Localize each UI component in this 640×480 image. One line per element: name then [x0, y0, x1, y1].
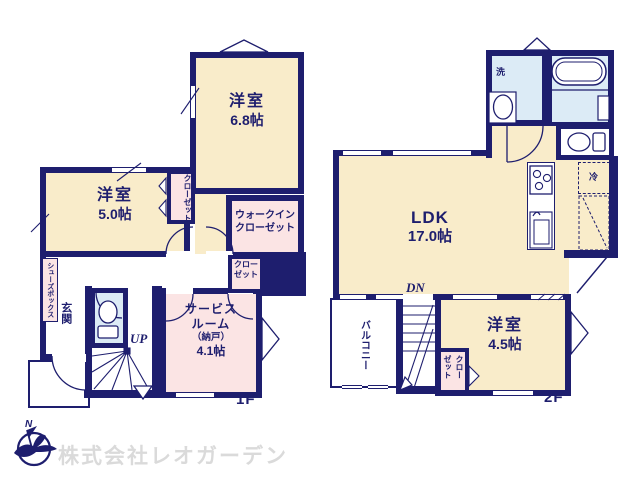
room-1f-50-label: 洋室 5.0帖 — [40, 186, 190, 224]
closet-line1: クロー — [228, 260, 264, 270]
window-2f-balcony1 — [340, 294, 366, 300]
window-2f-45-top1 — [453, 294, 497, 300]
room-2f-45-label: 洋室 4.5帖 — [440, 316, 570, 354]
wall-1f-hall-right — [152, 286, 162, 398]
service-room-label: サービス ルーム （納戸） 4.1帖 — [162, 302, 260, 359]
walkin-closet-label: ウォークイン クローゼット — [226, 210, 304, 235]
floor2-tag: 2F — [544, 389, 564, 408]
room-size: 5.0帖 — [40, 206, 190, 224]
ldk-2f-lower — [529, 253, 569, 294]
balcony-label: バルコニー — [357, 310, 370, 380]
window-1f-service-bottom — [176, 392, 214, 398]
window-2f-ldk-top1 — [343, 150, 381, 156]
entrance-porch-1f — [28, 360, 90, 408]
room-size: 6.8帖 — [190, 112, 304, 130]
kitchen-counter-2f — [527, 162, 555, 250]
wall-2f-stairs-left — [396, 294, 403, 394]
room-size: 4.5帖 — [440, 336, 570, 354]
service-line3: （納戸） — [162, 332, 260, 344]
ldk-name: LDK — [350, 207, 510, 228]
wall-2f-stairs-bottom — [401, 386, 441, 394]
window-2f-ldk-top2 — [393, 150, 471, 156]
closet-line2: ゼット — [228, 270, 264, 280]
door-opening-1f-room50 — [166, 251, 193, 258]
washroom-2f — [486, 50, 548, 126]
window-2f-45-bottom — [493, 390, 533, 396]
stairs-down-icon — [403, 305, 435, 388]
wall-2f-corridor-left — [486, 126, 492, 158]
company-watermark: 株式会社レオガーデン — [58, 440, 288, 470]
bathroom-2f — [546, 50, 614, 128]
window-2f-balcony-rail2 — [368, 385, 388, 389]
wall-2f-right-jog — [609, 156, 618, 256]
shoes-box-label: シューズボックス — [45, 261, 54, 319]
window-2f-45-top2 — [531, 294, 563, 300]
compass-north-label: N — [25, 419, 32, 432]
service-line4: 4.1帖 — [162, 344, 260, 359]
service-line2: ルーム — [162, 317, 260, 332]
stairs-up-label: UP — [130, 331, 147, 347]
ldk-label: LDK 17.0帖 — [350, 207, 510, 247]
fridge-label: 冷 — [589, 172, 598, 183]
bird-logo-icon — [14, 434, 57, 457]
wall-1f-bottom — [84, 390, 162, 398]
diagonal-door-icon — [577, 257, 607, 293]
floor1-tag: 1F — [236, 391, 256, 410]
bay-window-icon — [524, 38, 550, 50]
window-1f-50-top — [112, 167, 146, 173]
bay-window-icon — [262, 318, 279, 360]
room-name: 洋室 — [40, 186, 190, 206]
service-line1: サービス — [162, 302, 260, 317]
room-name: 洋室 — [190, 92, 304, 112]
floorplan-canvas: 洋室 6.8帖 洋室 5.0帖 クローゼット ウォークイン クローゼット クロー… — [0, 0, 640, 480]
wall-block-1f — [262, 252, 306, 296]
window-2f-balcony-rail1 — [342, 385, 362, 389]
closet-1f-tall-label: クローゼット — [170, 174, 192, 222]
room-name: 洋室 — [440, 316, 570, 336]
door-opening-1f-entrance — [52, 354, 86, 362]
closet-2f-label: クローゼット — [441, 353, 465, 381]
ldk-2f-corridor — [486, 126, 560, 160]
door-opening-1f-service-l — [166, 288, 193, 294]
room-1f-68-label: 洋室 6.8帖 — [190, 92, 304, 130]
bay-window-icon — [220, 40, 268, 52]
ldk-size: 17.0帖 — [350, 228, 510, 247]
compass-icon — [14, 426, 57, 465]
wic-line2: クローゼット — [226, 223, 304, 236]
wic-line1: ウォークイン — [226, 210, 304, 223]
wall-2f-kitchen-bottom — [564, 250, 618, 258]
bay-window-icon — [571, 312, 588, 354]
toilet-room-1f — [90, 288, 128, 348]
genkan-label: 玄関 — [58, 302, 72, 324]
closet-1f-small-label: クロー ゼット — [228, 260, 264, 280]
stairs-up-icon — [92, 348, 148, 390]
toilet-room-2f — [556, 124, 614, 160]
laundry-label: 洗 — [496, 67, 505, 78]
stairs-down-label: DN — [406, 280, 425, 296]
